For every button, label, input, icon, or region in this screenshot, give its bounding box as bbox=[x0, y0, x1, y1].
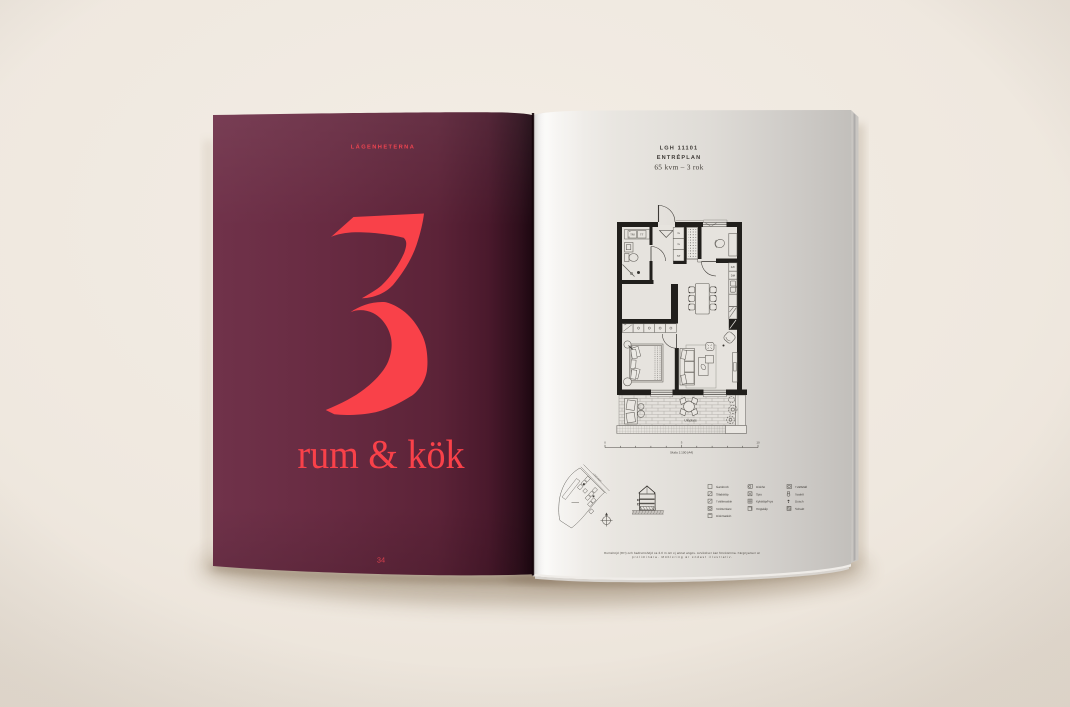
svg-text:Toalett: Toalett bbox=[795, 492, 804, 496]
svg-text:ENTRÉPLAN: ENTRÉPLAN bbox=[657, 154, 702, 161]
svg-text:Städskåp: Städskåp bbox=[716, 492, 729, 496]
svg-text:Garderob: Garderob bbox=[716, 485, 729, 489]
svg-text:Uteplats: Uteplats bbox=[684, 419, 697, 423]
svg-text:K/F: K/F bbox=[731, 266, 736, 269]
svg-text:TT: TT bbox=[640, 232, 644, 236]
svg-text:Spis: Spis bbox=[756, 492, 762, 496]
svg-text:10: 10 bbox=[756, 441, 760, 445]
svg-text:LÄGENHETERNA: LÄGENHETERNA bbox=[351, 144, 415, 151]
svg-text:65 kvm – 3 rok: 65 kvm – 3 rok bbox=[654, 163, 703, 172]
svg-text:Tvättställ: Tvättställ bbox=[795, 485, 807, 489]
svg-text:Högskåp: Högskåp bbox=[756, 507, 768, 511]
svg-text:Torktumlare: Torktumlare bbox=[716, 507, 732, 511]
svg-text:LGH 11101: LGH 11101 bbox=[660, 146, 699, 152]
svg-text:Kylskåp/Frys: Kylskåp/Frys bbox=[756, 500, 774, 504]
svg-text:Tvättmaskin: Tvättmaskin bbox=[716, 500, 733, 504]
svg-text:Dusch: Dusch bbox=[795, 500, 804, 504]
svg-text:ST: ST bbox=[677, 254, 681, 258]
svg-text:TM: TM bbox=[630, 232, 635, 236]
svg-text:rum & kök: rum & kök bbox=[298, 431, 465, 477]
svg-text:preliminära. Möblering är enda: preliminära. Möblering är endast illustr… bbox=[632, 555, 732, 559]
svg-text:Schakt: Schakt bbox=[795, 507, 804, 511]
svg-text:Diskmaskin: Diskmaskin bbox=[716, 514, 732, 518]
svg-text:Diskho: Diskho bbox=[756, 485, 766, 489]
svg-text:34: 34 bbox=[377, 555, 385, 564]
svg-text:Skala 1:100 (A4): Skala 1:100 (A4) bbox=[670, 451, 693, 455]
